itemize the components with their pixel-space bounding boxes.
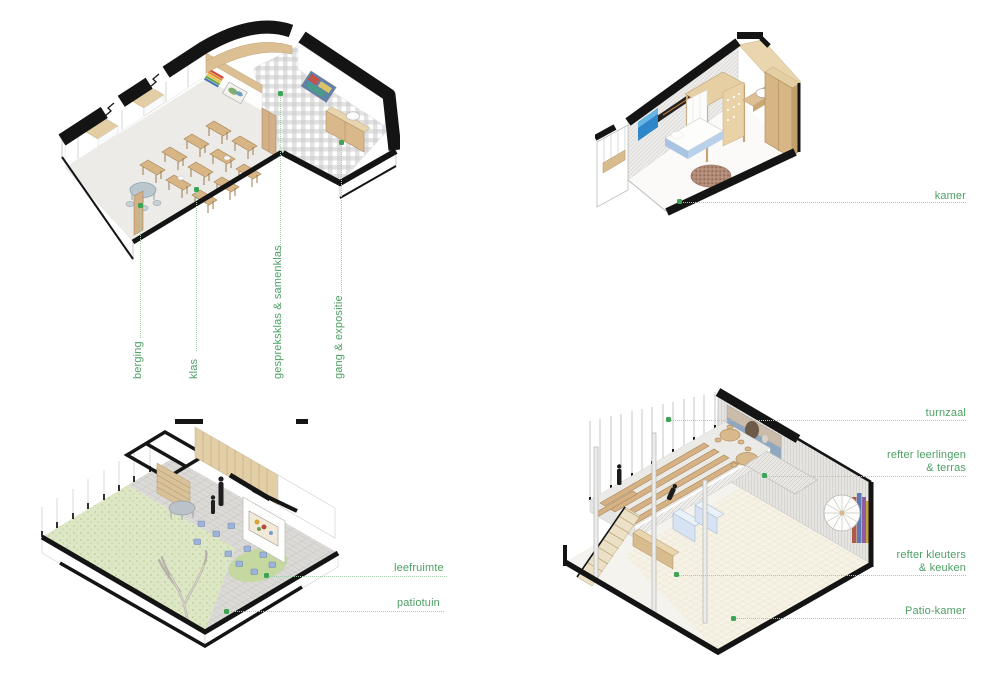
leader-line-gespreksklas [280, 95, 281, 251]
leader-line-patiotuin [229, 611, 444, 612]
leader-line-turnzaal [671, 420, 966, 421]
anchor-dot-patiotuin [224, 609, 229, 614]
label-refter-kleuters: refter kleuters & keuken [897, 549, 967, 575]
label-refter-leerlingen-line1: refter leerlingen [887, 449, 966, 462]
anchor-dot-kamer [677, 199, 682, 204]
label-refter-kleuters-line1: refter kleuters [897, 549, 967, 562]
leader-line-patio-kamer [736, 618, 966, 619]
anchor-dot-refter-kleuters [674, 572, 679, 577]
leader-line-gang [341, 144, 342, 293]
label-gang-expositie: gang & expositie [333, 295, 346, 379]
spiral-stair [824, 495, 860, 531]
livingroom-axonometric [30, 405, 360, 660]
leader-line-berging [140, 207, 141, 338]
leader-line-kamer [681, 202, 966, 203]
label-refter-kleuters-line2: & keuken [897, 562, 967, 575]
leader-line-klas [196, 191, 197, 351]
anchor-dot-patio-kamer [731, 616, 736, 621]
anchor-dot-berging [138, 203, 143, 208]
leader-line-refter-kleuters [679, 575, 966, 576]
anchor-dot-gang [339, 140, 344, 145]
label-patiotuin: patiotuin [397, 597, 440, 610]
label-refter-leerlingen: refter leerlingen & terras [887, 449, 966, 475]
architectural-sheet: berging klas gespreksklas & samenklas ga… [0, 0, 1000, 675]
label-gespreksklas-samenklas: gespreksklas & samenklas [272, 245, 285, 379]
label-klas: klas [188, 359, 201, 379]
anchor-dot-klas [194, 187, 199, 192]
label-leefruimte: leefruimte [394, 562, 444, 575]
anchor-dot-leefruimte [264, 573, 269, 578]
label-turnzaal: turnzaal [926, 407, 966, 420]
classroom-axonometric [40, 12, 400, 267]
label-kamer: kamer [935, 190, 966, 203]
label-patio-kamer: Patio-kamer [905, 605, 966, 618]
label-refter-leerlingen-line2: & terras [887, 462, 966, 475]
door [262, 108, 276, 156]
label-berging: berging [132, 341, 145, 379]
anchor-dot-turnzaal [666, 417, 671, 422]
cut-wood-wall [134, 191, 143, 235]
anchor-dot-refter-leerlingen [762, 473, 767, 478]
anchor-dot-gespreksklas [278, 91, 283, 96]
bedroom-axonometric [595, 30, 807, 230]
leader-line-refter-leerlingen [767, 476, 966, 477]
leader-line-leefruimte [269, 576, 447, 577]
